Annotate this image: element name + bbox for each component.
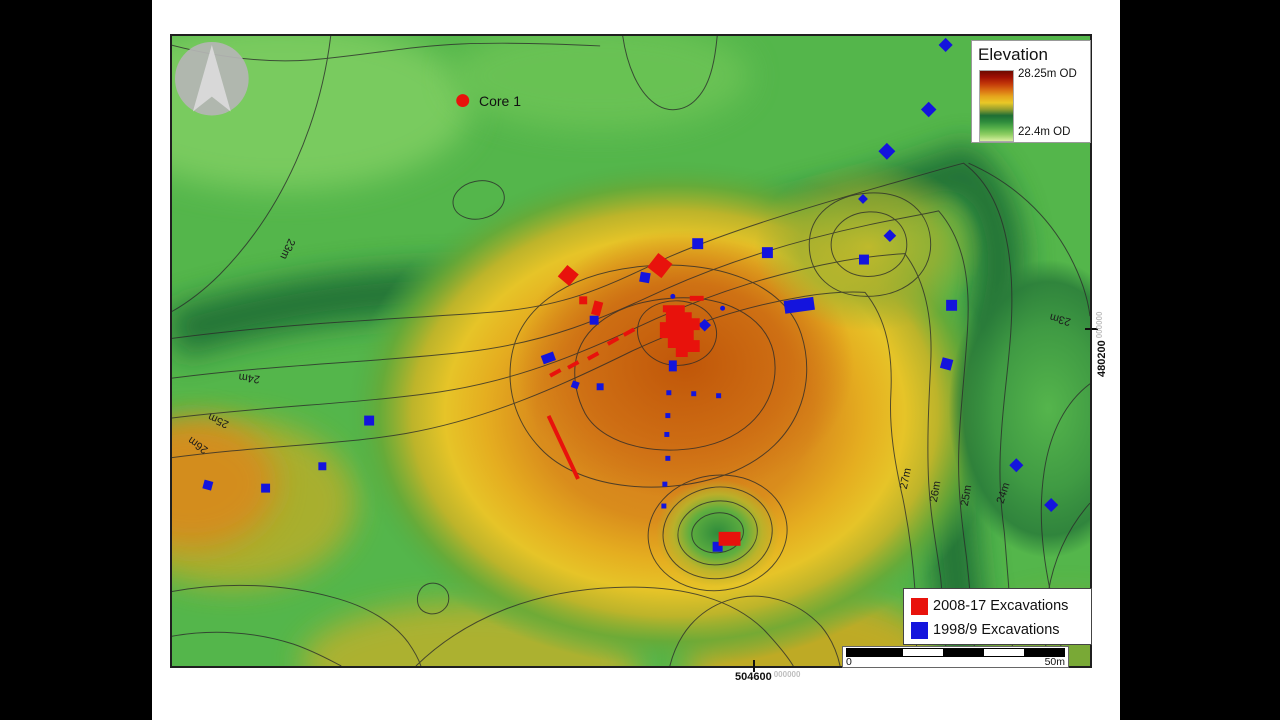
red-swatch-icon <box>911 598 928 615</box>
excavation-marker-1998-9 <box>665 456 670 461</box>
screenshot-stage: 23m24m25m26m27m26m25m24m23m Core 1 Eleva… <box>0 0 1280 720</box>
scale-bar-track <box>846 648 1065 657</box>
elevation-min-label: 22.4m OD <box>1018 126 1070 138</box>
excavation-marker-1998-9 <box>590 316 599 325</box>
core-1-label: Core 1 <box>479 93 521 109</box>
scale-segment <box>984 649 1024 656</box>
terrain-hollow <box>656 479 779 586</box>
elevation-gradient-bar <box>979 70 1014 142</box>
legend-row-1998-9: 1998/9 Excavations <box>911 618 1087 642</box>
excavation-marker-1998-9 <box>720 306 725 311</box>
north-arrow-icon <box>175 42 249 116</box>
excavation-marker-1998-9 <box>664 432 669 437</box>
excavation-marker-1998-9 <box>597 383 604 390</box>
excavation-marker-2008-17 <box>719 532 741 546</box>
terrain-canvas: 23m24m25m26m27m26m25m24m23m <box>172 36 1090 666</box>
contour-label: 24m <box>238 371 261 385</box>
excavation-marker-1998-9 <box>318 462 326 470</box>
excavation-marker-1998-9 <box>762 247 773 258</box>
elevation-max-label: 28.25m OD <box>1018 68 1077 80</box>
letterbox-right <box>1120 0 1280 720</box>
grid-coordinate-right-value: 480200 <box>1096 340 1108 377</box>
grid-coordinate-right-suffix: 000000 <box>1095 312 1104 339</box>
excavation-marker-1998-9 <box>716 393 721 398</box>
grid-coordinate-bottom: 504600000000 <box>735 671 800 683</box>
excavation-marker-1998-9 <box>364 416 374 426</box>
scale-segment <box>903 649 943 656</box>
site-map: 23m24m25m26m27m26m25m24m23m Core 1 Eleva… <box>170 34 1092 668</box>
scale-segment <box>1024 649 1064 656</box>
scale-start-label: 0 <box>846 657 852 668</box>
excavation-marker-1998-9 <box>669 360 677 371</box>
legend-label-2008-17: 2008-17 Excavations <box>933 598 1068 614</box>
excavation-marker-1998-9 <box>859 255 869 265</box>
scale-end-label: 50m <box>1045 657 1065 668</box>
grid-coordinate-bottom-suffix: 000000 <box>774 670 801 679</box>
legend-row-2008-17: 2008-17 Excavations <box>911 594 1087 618</box>
excavation-marker-1998-9 <box>261 484 270 493</box>
excavation-marker-1998-9 <box>665 413 670 418</box>
excavation-marker-2008-17 <box>690 296 704 301</box>
scale-segment <box>847 649 903 656</box>
grid-coordinate-bottom-value: 504600 <box>735 671 772 683</box>
excavation-marker-1998-9 <box>691 391 696 396</box>
legend-label-1998-9: 1998/9 Excavations <box>933 622 1060 638</box>
excavation-marker-2008-17 <box>579 296 587 304</box>
excavation-legend: 2008-17 Excavations 1998/9 Excavations <box>903 588 1092 645</box>
scale-bar: 0 50m <box>842 646 1069 668</box>
excavation-marker-1998-9 <box>666 390 671 395</box>
excavation-marker-1998-9 <box>946 300 957 311</box>
letterbox-left <box>0 0 152 720</box>
excavation-marker-2008-17 <box>456 94 469 107</box>
excavation-marker-1998-9 <box>661 504 666 509</box>
elevation-legend: Elevation 28.25m OD 22.4m OD <box>971 40 1091 143</box>
blue-swatch-icon <box>911 622 928 639</box>
excavation-marker-1998-9 <box>692 238 703 249</box>
grid-coordinate-right: 480200000000 <box>1096 312 1108 377</box>
excavation-marker-1998-9 <box>639 272 651 284</box>
scale-segment <box>943 649 983 656</box>
excavation-marker-1998-9 <box>670 294 675 299</box>
excavation-marker-1998-9 <box>662 482 667 487</box>
elevation-legend-title: Elevation <box>978 45 1090 65</box>
